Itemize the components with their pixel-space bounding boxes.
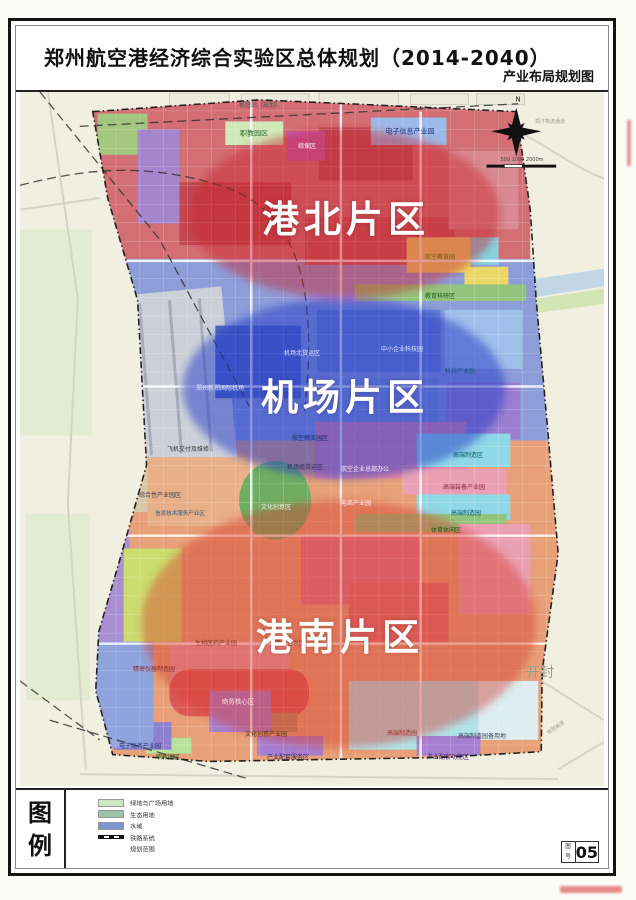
page-subtitle: 产业布局规划图 bbox=[503, 66, 594, 85]
legend-label: 绿地与广场用地 bbox=[130, 798, 173, 807]
legend-title: 图 例 bbox=[16, 790, 66, 868]
legend-label: 规划范围 bbox=[130, 844, 155, 853]
map-canvas: 枢纽站（规划）职教园区综保区电子信息产业园郑汴物流通道N500 1000 200… bbox=[20, 92, 604, 786]
district-oval bbox=[182, 298, 505, 479]
page-title: 郑州航空港经济综合实验区总体规划（2014-2040） bbox=[44, 42, 551, 71]
red-edge-mark bbox=[627, 120, 631, 166]
red-watermark bbox=[560, 886, 622, 893]
legend-items: 绿地与广场用地 生态用地 水域 铁路系统 规划范围 bbox=[98, 797, 200, 855]
legend-row: 绿地与广场用地 bbox=[98, 797, 200, 809]
legend-title-char: 例 bbox=[28, 834, 52, 858]
legend-label: 生态用地 bbox=[130, 810, 155, 819]
water-swatch bbox=[98, 822, 124, 830]
sheet-number-caption: 图 号 bbox=[562, 842, 576, 862]
legend-band: 图 例 绿地与广场用地 生态用地 水域 铁路系统 bbox=[16, 788, 608, 868]
district-oval bbox=[142, 500, 537, 747]
legend-row: 铁路系统 bbox=[98, 832, 200, 844]
boundary-symbol bbox=[98, 848, 124, 850]
title-band: 郑州航空港经济综合实验区总体规划（2014-2040） 产业布局规划图 bbox=[16, 26, 608, 92]
inner-frame: 郑州航空港经济综合实验区总体规划（2014-2040） 产业布局规划图 bbox=[15, 25, 609, 869]
sheet-number-value: 05 bbox=[576, 842, 598, 862]
legend-row: 生态用地 bbox=[98, 809, 200, 821]
scale-bar bbox=[486, 165, 556, 168]
legend-row: 规划范围 bbox=[98, 843, 200, 855]
railway-symbol bbox=[98, 835, 124, 839]
legend-row: 水域 bbox=[98, 820, 200, 832]
eco-land-swatch bbox=[98, 810, 124, 818]
legend-title-char: 图 bbox=[28, 801, 52, 825]
legend-label: 水域 bbox=[130, 821, 142, 830]
green-plaza-swatch bbox=[98, 799, 124, 807]
base-map bbox=[20, 92, 604, 786]
plan-sheet: 郑州航空港经济综合实验区总体规划（2014-2040） 产业布局规划图 bbox=[8, 18, 616, 876]
district-oval bbox=[189, 129, 500, 298]
legend-label: 铁路系统 bbox=[130, 833, 155, 842]
sheet-number-box: 图 号 05 bbox=[561, 841, 599, 863]
